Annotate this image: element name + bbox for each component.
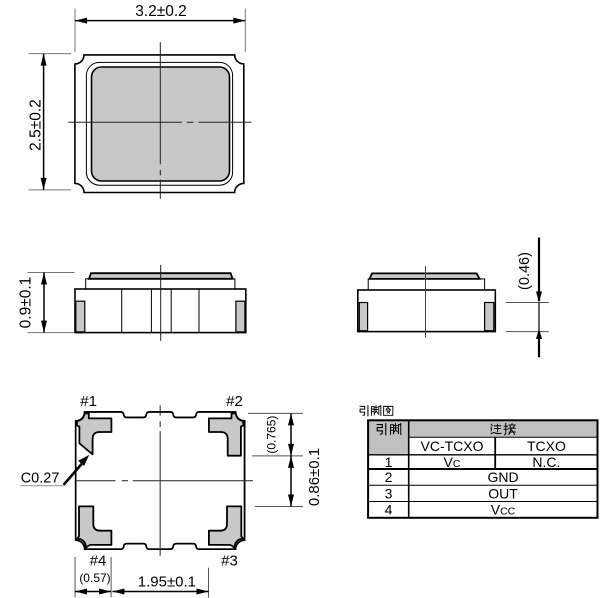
svg-text:N.C.: N.C. [532,454,560,470]
svg-text:0.9±0.1: 0.9±0.1 [18,277,35,329]
svg-text:3: 3 [385,485,393,501]
svg-text:TCXO: TCXO [527,438,566,454]
svg-text:C0.27: C0.27 [21,471,60,487]
svg-text:3.2±0.2: 3.2±0.2 [135,3,187,20]
svg-text:VC-TCXO: VC-TCXO [421,438,484,454]
svg-text:#3: #3 [221,553,238,570]
svg-text:1.95±0.1: 1.95±0.1 [138,574,196,591]
svg-text:#2: #2 [226,393,243,410]
svg-text:#4: #4 [90,553,107,570]
svg-text:2: 2 [385,469,393,485]
svg-text:GND: GND [487,469,518,485]
svg-text:2.5±0.2: 2.5±0.2 [27,99,44,151]
svg-text:OUT: OUT [488,485,518,501]
svg-text:0.86±0.1: 0.86±0.1 [306,448,323,506]
svg-text:#1: #1 [80,393,97,410]
svg-text:4: 4 [385,502,393,518]
svg-text:(0.46): (0.46) [517,252,533,290]
svg-text:1: 1 [385,454,393,470]
svg-text:(0.57): (0.57) [79,571,110,585]
svg-text:(0.765): (0.765) [265,416,279,454]
